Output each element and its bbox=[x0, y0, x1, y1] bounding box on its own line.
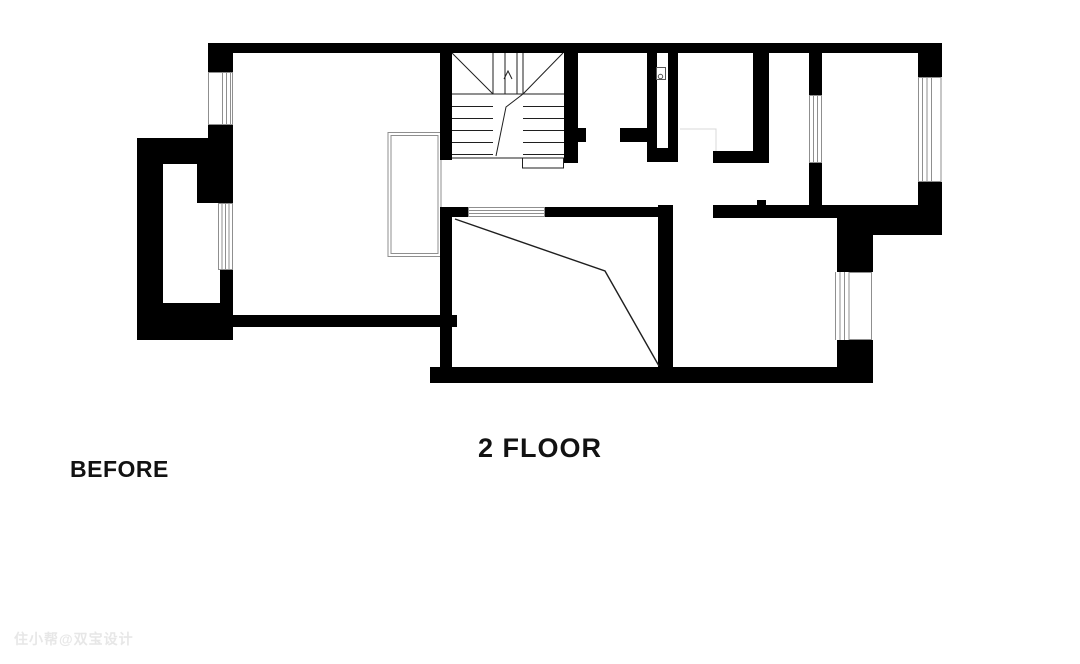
floor-plan-canvas: 2 FLOOR BEFORE 住小帮@双宝设计 bbox=[0, 0, 1080, 664]
wall-segment bbox=[647, 53, 657, 148]
wall-segment bbox=[918, 43, 942, 77]
window-right-exterior bbox=[918, 77, 942, 182]
wall-segment bbox=[647, 148, 678, 162]
stage-label: BEFORE bbox=[70, 456, 169, 483]
wall-segment bbox=[837, 235, 873, 272]
duct-symbol bbox=[657, 68, 666, 80]
wall-segment bbox=[545, 207, 658, 217]
wall-segment bbox=[658, 205, 673, 383]
void-railing-symbol bbox=[388, 133, 441, 257]
wall-segment bbox=[440, 43, 452, 160]
wall-segment bbox=[837, 218, 940, 235]
wall-segment bbox=[578, 128, 586, 142]
window-partition bbox=[809, 95, 822, 163]
watermark-text: 住小帮@双宝设计 bbox=[14, 629, 134, 649]
wall-segment bbox=[809, 53, 822, 95]
window-upper-left bbox=[208, 72, 233, 125]
wall-segment bbox=[564, 43, 578, 163]
faint-reference-line bbox=[680, 129, 716, 151]
wall-segment bbox=[713, 205, 930, 218]
wall-segment bbox=[668, 53, 678, 148]
wall-segment bbox=[208, 43, 233, 72]
floor-plan-drawing bbox=[0, 0, 1080, 664]
wall-segment bbox=[620, 128, 647, 142]
window-lower-middle-top bbox=[468, 207, 545, 217]
wall-segment bbox=[713, 151, 769, 163]
window-bay-inner bbox=[218, 203, 233, 270]
wall-segment bbox=[137, 315, 457, 327]
window-bottom-right bbox=[836, 272, 872, 340]
stair-break-line bbox=[496, 94, 523, 156]
wall-segment bbox=[430, 367, 873, 383]
floor-title: 2 FLOOR bbox=[478, 433, 602, 464]
wall-segment bbox=[757, 200, 766, 206]
wall-segment bbox=[440, 207, 452, 367]
wall-segment bbox=[197, 150, 233, 203]
stair-bottom-tread bbox=[523, 158, 564, 168]
wall-segment bbox=[753, 53, 769, 163]
staircase-symbol bbox=[452, 53, 564, 168]
slope-annotation bbox=[455, 219, 659, 366]
